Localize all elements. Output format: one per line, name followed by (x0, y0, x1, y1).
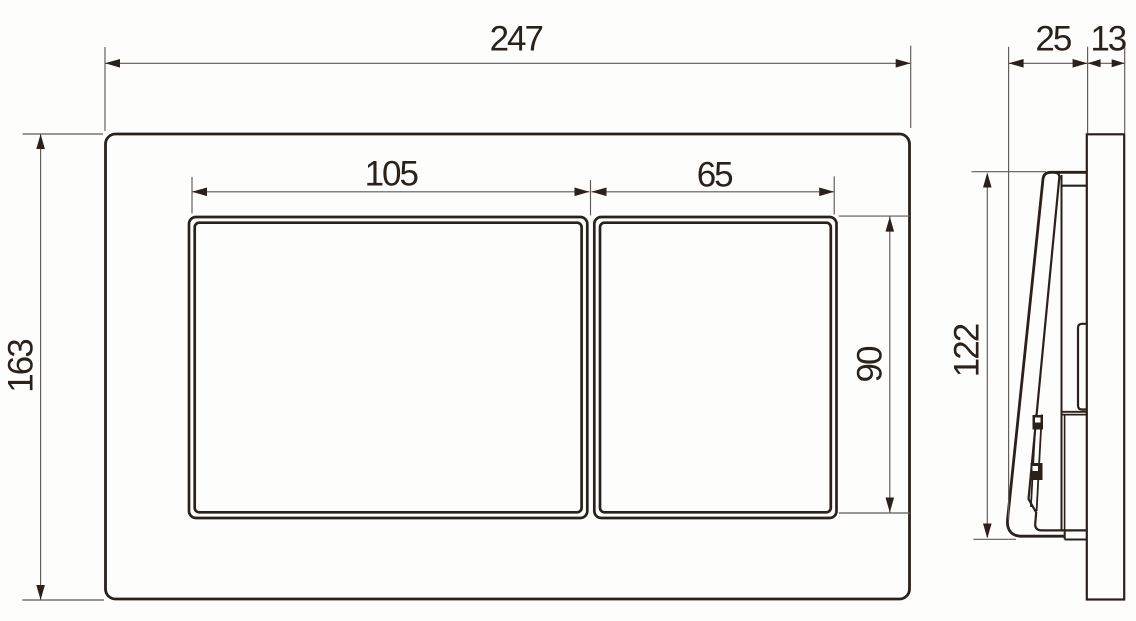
svg-text:247: 247 (490, 19, 543, 58)
svg-text:90: 90 (851, 346, 890, 382)
svg-text:122: 122 (948, 324, 987, 377)
svg-text:105: 105 (365, 155, 418, 194)
svg-text:65: 65 (697, 156, 732, 195)
svg-text:25: 25 (1035, 19, 1070, 58)
svg-text:13: 13 (1090, 19, 1125, 58)
svg-text:163: 163 (2, 340, 41, 393)
